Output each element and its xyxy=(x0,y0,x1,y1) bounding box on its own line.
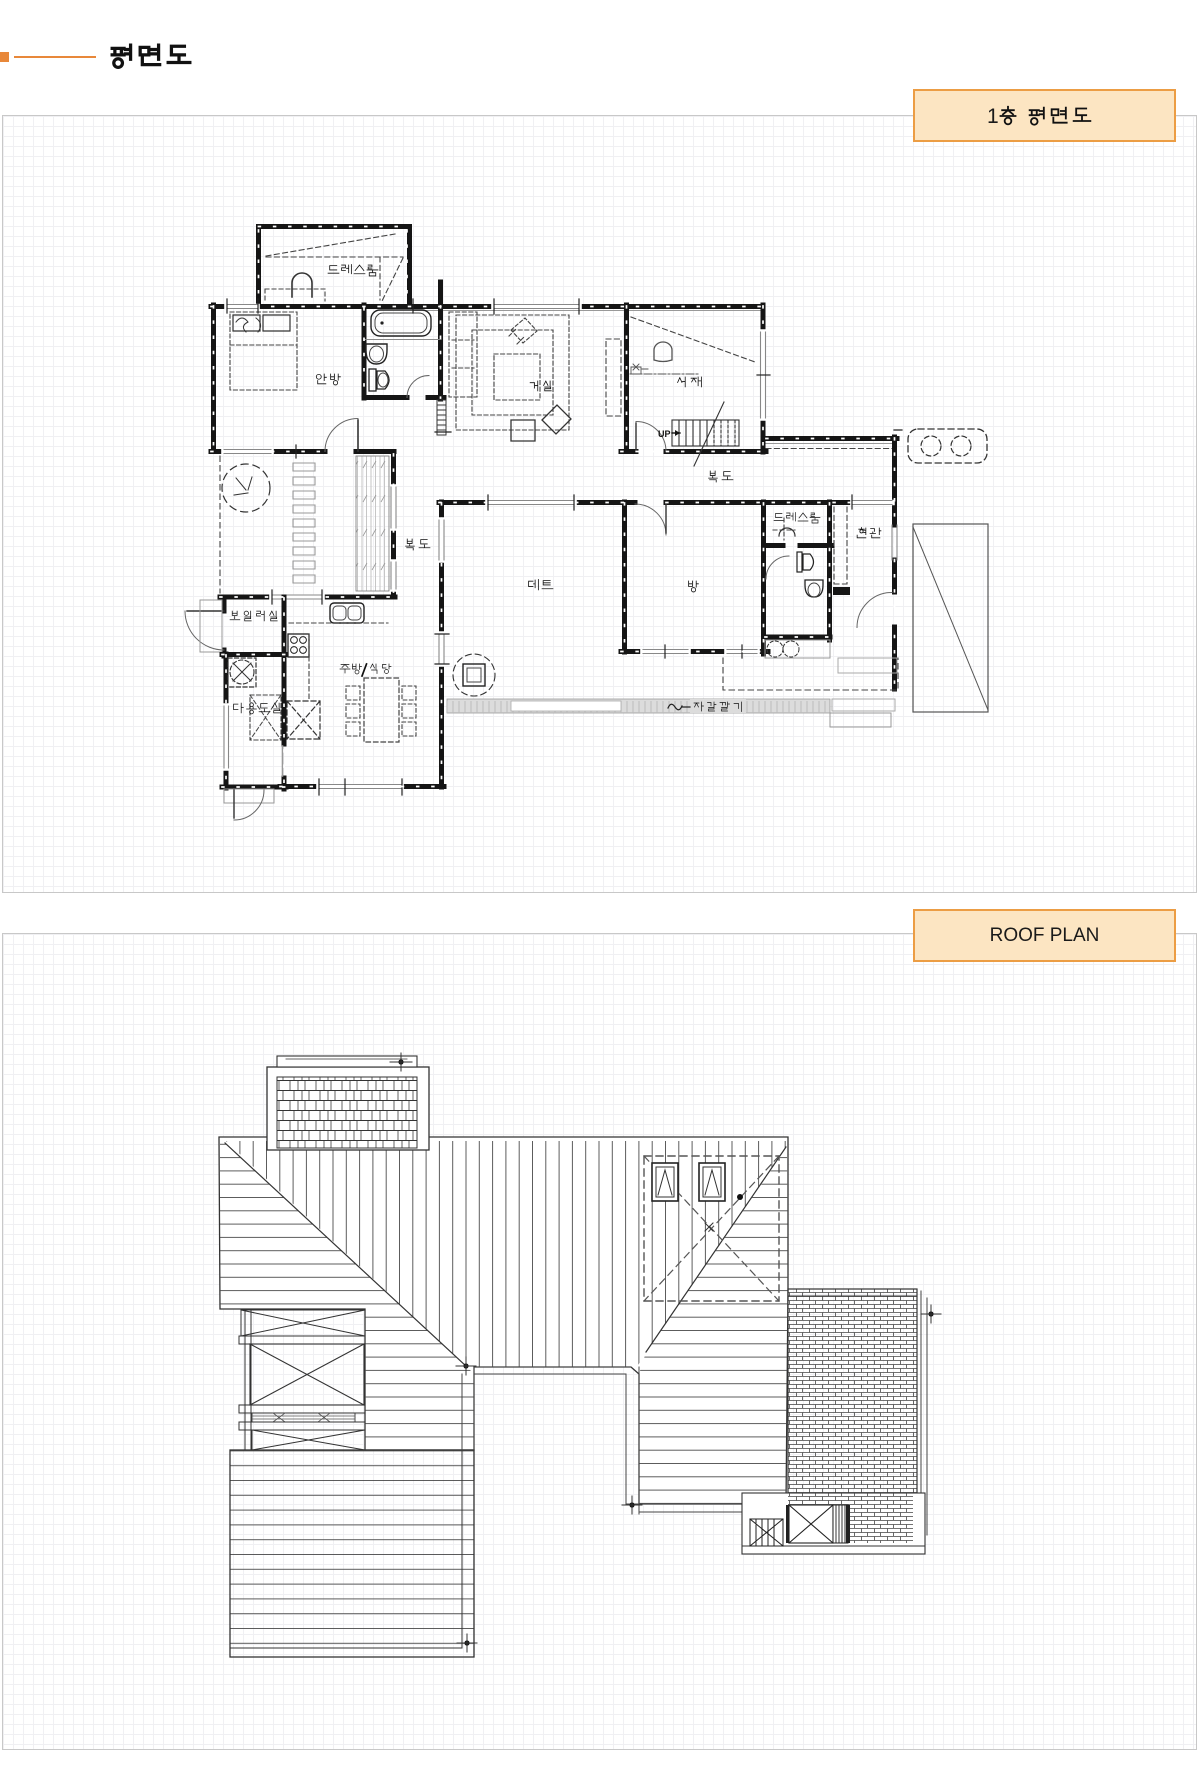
svg-text:1: 1 xyxy=(987,105,999,128)
svg-text:UP: UP xyxy=(658,429,671,439)
